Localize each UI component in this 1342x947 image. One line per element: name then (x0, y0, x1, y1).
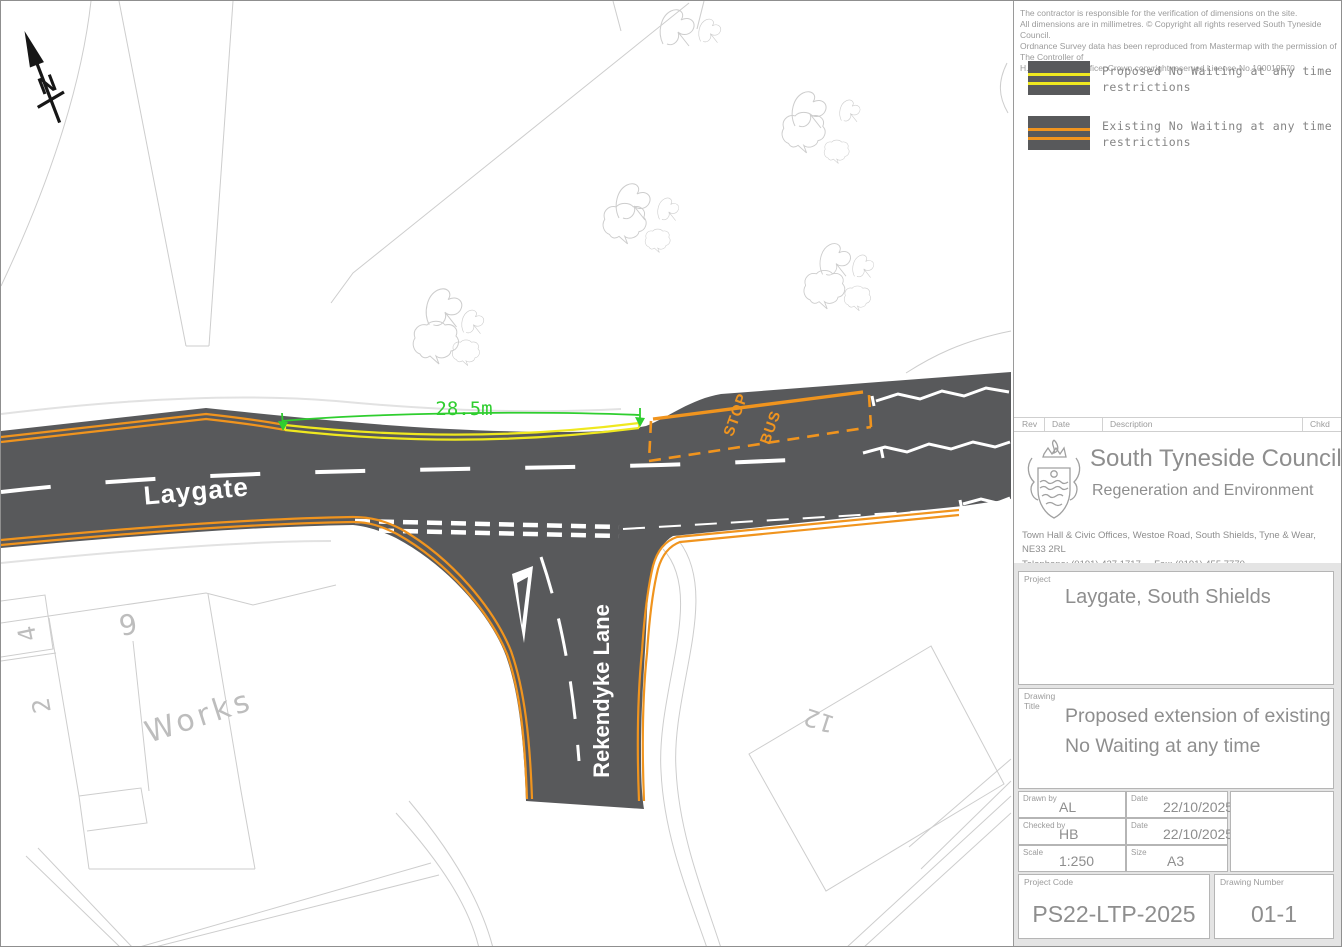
rev-col-header: Rev (1022, 419, 1037, 429)
copyright-line: The contractor is responsible for the ve… (1020, 8, 1340, 19)
size-value: A3 (1167, 853, 1184, 869)
copyright-line: All dimensions are in millimetres. © Cop… (1020, 19, 1340, 41)
checked-by-box: Checked by HB (1018, 818, 1126, 845)
drawing-title-box: Drawing Title Proposed extension of exis… (1018, 688, 1334, 789)
tree-symbols (413, 10, 874, 366)
project-code-value: PS22-LTP-2025 (1019, 901, 1209, 928)
drawing-title-label: Drawing Title (1024, 691, 1064, 711)
project-value: Laygate, South Shields (1065, 586, 1271, 609)
yellow-line (1028, 82, 1090, 85)
scale-box: Scale 1:250 (1018, 845, 1126, 872)
revision-table-header: Rev Date Description Chkd (1014, 417, 1342, 432)
column-divider (1302, 418, 1303, 431)
date-col-header: Date (1052, 419, 1070, 429)
drawing-number-value: 01-1 (1215, 901, 1333, 928)
project-code-box: Project Code PS22-LTP-2025 (1018, 874, 1210, 939)
legend-item-proposed: Proposed No Waiting at any time restrict… (1014, 61, 1342, 101)
checked-date-box: Date 22/10/2025 (1126, 818, 1228, 845)
drawn-by-value: AL (1059, 799, 1076, 815)
title-block: The contractor is responsible for the ve… (1013, 1, 1342, 947)
drawn-by-box: Drawn by AL (1018, 791, 1126, 818)
checked-by-value: HB (1059, 826, 1078, 842)
drawn-date-value: 22/10/2025 (1163, 799, 1233, 815)
address-line: Town Hall & Civic Offices, Westoe Road, … (1022, 529, 1340, 558)
drawing-number-box: Drawing Number 01-1 (1214, 874, 1334, 939)
building-labels: Works 9 4 2 12 (12, 607, 838, 750)
legend-label: Proposed No Waiting at any time restrict… (1102, 64, 1332, 95)
footway-edge-north (1, 397, 621, 414)
council-department: Regeneration and Environment (1092, 482, 1313, 500)
description-col-header: Description (1110, 419, 1153, 429)
project-label: Project (1024, 574, 1050, 584)
size-box: Size A3 (1126, 845, 1228, 872)
yellow-line (1028, 73, 1090, 76)
legend-item-existing: Existing No Waiting at any time restrict… (1014, 116, 1342, 156)
column-divider (1044, 418, 1045, 431)
drawing-sheet: 28.5m BUS STOP Laygate Rekendyke Lane Wo… (0, 0, 1342, 947)
orange-line (1028, 128, 1090, 131)
scale-value: 1:250 (1059, 853, 1094, 869)
copyright-line: Ordnance Survey data has been reproduced… (1020, 41, 1340, 63)
orange-line (1028, 137, 1090, 140)
checked-date-value: 22/10/2025 (1163, 826, 1233, 842)
council-crest-logo (1024, 438, 1084, 526)
column-divider (1102, 418, 1103, 431)
label-plot-4: 4 (12, 623, 43, 644)
drawn-date-box: Date 22/10/2025 (1126, 791, 1228, 818)
site-plan-map: 28.5m BUS STOP Laygate Rekendyke Lane Wo… (1, 1, 1013, 947)
project-box: Project Laygate, South Shields (1018, 571, 1334, 685)
street-label-rekendyke-lane: Rekendyke Lane (589, 604, 614, 778)
label-plot-12: 12 (800, 702, 838, 738)
council-name: South Tyneside Council (1090, 445, 1342, 473)
chkd-col-header: Chkd (1310, 419, 1330, 429)
spare-box (1230, 791, 1334, 872)
label-works: Works (141, 683, 258, 751)
north-arrow: N (11, 26, 74, 128)
dimension-label: 28.5m (435, 398, 492, 420)
legend-label: Existing No Waiting at any time restrict… (1102, 119, 1332, 150)
drawing-title-value: Proposed extension of existing No Waitin… (1065, 701, 1331, 761)
label-plot-2: 2 (27, 696, 57, 716)
label-plot-9: 9 (116, 607, 139, 643)
footway-edge-south (1, 541, 331, 563)
legend-swatch-proposed (1028, 61, 1090, 95)
legend-swatch-existing (1028, 116, 1090, 150)
